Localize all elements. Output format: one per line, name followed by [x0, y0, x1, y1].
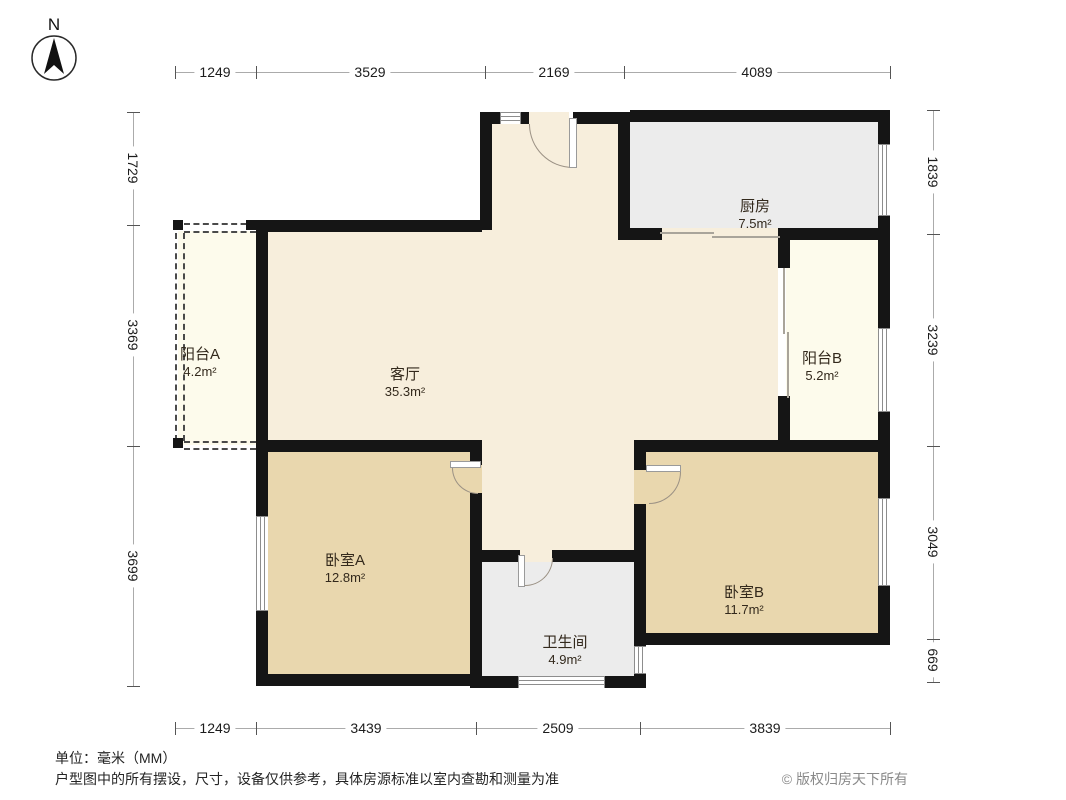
wall-segment — [878, 584, 890, 645]
wall-segment — [634, 452, 646, 470]
room-name: 阳台B — [782, 350, 862, 368]
room-name: 卧室A — [285, 552, 405, 570]
dimension-label: 1839 — [925, 150, 941, 193]
dimension-label: 3239 — [925, 318, 941, 361]
room-name: 卫生间 — [505, 634, 625, 652]
room-area: 11.7m² — [684, 602, 804, 618]
dimension-tick — [890, 722, 891, 735]
dimension-tick — [927, 110, 940, 111]
dimension-tick — [127, 686, 140, 687]
dimension-tick — [640, 722, 641, 735]
dimension-tick — [127, 225, 140, 226]
window — [518, 676, 605, 688]
dimension-line — [933, 110, 934, 682]
balcony-corner-post — [173, 438, 183, 448]
dimension-tick — [256, 722, 257, 735]
room-label-balcony-a: 阳台A 4.2m² — [160, 346, 240, 380]
wall-segment — [470, 493, 482, 688]
wall-segment — [552, 550, 646, 562]
room-area: 4.9m² — [505, 652, 625, 668]
floor-plan: N — [0, 0, 1066, 800]
wall-segment — [256, 440, 482, 452]
dimension-tick — [127, 112, 140, 113]
dimension-label: 3699 — [125, 544, 141, 587]
dimension-label: 1249 — [194, 720, 235, 736]
dimension-label: 4089 — [736, 64, 777, 80]
wall-segment — [618, 228, 662, 240]
wall-segment — [878, 410, 890, 498]
wall-segment — [256, 674, 482, 686]
wall-segment — [634, 440, 890, 452]
dimension-label: 2169 — [533, 64, 574, 80]
room-area: 35.3m² — [345, 384, 465, 400]
dimension-label: 3529 — [349, 64, 390, 80]
wall-segment — [482, 550, 520, 562]
room-name: 客厅 — [345, 366, 465, 384]
balcony-b-opening — [783, 268, 785, 334]
wall-segment — [634, 633, 890, 645]
balcony-outline-dash — [184, 441, 256, 443]
window — [878, 498, 890, 586]
wall-segment — [778, 396, 790, 442]
room-label-bedroom-b: 卧室B 11.7m² — [684, 584, 804, 618]
room-area: 12.8m² — [285, 570, 405, 586]
wall-segment — [878, 110, 890, 144]
bathroom-door-leaf — [518, 555, 525, 587]
room-label-living: 客厅 35.3m² — [345, 366, 465, 400]
wall-segment — [634, 504, 646, 646]
balcony-a-floor — [178, 231, 258, 445]
entry-door-leaf — [569, 118, 577, 168]
dimension-label: 669 — [925, 642, 941, 677]
balcony-outline-dash — [175, 233, 177, 441]
room-area: 7.5m² — [695, 216, 815, 232]
balcony-outline-dash — [183, 233, 185, 441]
compass-north-label: N — [48, 15, 60, 34]
wall-segment — [630, 110, 890, 122]
wall-segment — [778, 238, 790, 268]
living-room-floor — [268, 228, 778, 443]
disclaimer-text: 户型图中的所有摆设，尺寸，设备仅供参考，具体房源标准以室内查勘和测量为准 — [55, 769, 559, 789]
dimension-label: 3439 — [345, 720, 386, 736]
room-label-bathroom: 卫生间 4.9m² — [505, 634, 625, 668]
room-area: 4.2m² — [160, 364, 240, 380]
room-label-kitchen: 厨房 7.5m² — [695, 198, 815, 232]
room-name: 卧室B — [684, 584, 804, 602]
window — [878, 328, 890, 412]
room-area: 5.2m² — [782, 368, 862, 384]
room-name: 厨房 — [695, 198, 815, 216]
dimension-label: 2509 — [537, 720, 578, 736]
wall-segment — [256, 220, 482, 232]
dimension-tick — [927, 446, 940, 447]
dimension-label: 3369 — [125, 313, 141, 356]
dimension-label: 3839 — [744, 720, 785, 736]
dimension-tick — [175, 722, 176, 735]
dimension-label: 1249 — [194, 64, 235, 80]
unit-note: 单位：毫米（MM） — [55, 748, 176, 768]
dimension-tick — [476, 722, 477, 735]
hallway-floor — [482, 440, 634, 562]
window — [878, 144, 890, 216]
balcony-corner-post — [173, 220, 183, 230]
window — [256, 516, 268, 611]
dimension-label: 3049 — [925, 520, 941, 563]
window — [500, 112, 521, 124]
balcony-outline-dash — [184, 231, 256, 233]
north-compass-icon: N — [20, 10, 88, 90]
dimension-tick — [927, 682, 940, 683]
room-label-bedroom-a: 卧室A 12.8m² — [285, 552, 405, 586]
dimension-tick — [927, 639, 940, 640]
balcony-outline-dash — [184, 448, 256, 450]
bedroom-b-door-leaf — [646, 465, 681, 472]
kitchen-opening — [660, 232, 714, 234]
window — [634, 646, 646, 674]
dimension-tick — [624, 66, 625, 79]
kitchen-opening — [712, 236, 780, 238]
balcony-corner-post — [246, 220, 256, 230]
dimension-tick — [175, 66, 176, 79]
dimension-label: 1729 — [125, 146, 141, 189]
bedroom-a-door-leaf — [450, 461, 481, 468]
dimension-line — [133, 112, 134, 686]
compass-needle-icon — [44, 38, 64, 74]
room-label-balcony-b: 阳台B 5.2m² — [782, 350, 862, 384]
dimension-tick — [927, 234, 940, 235]
wall-segment — [470, 676, 518, 688]
wall-segment — [618, 122, 630, 234]
dimension-tick — [890, 66, 891, 79]
copyright-text: © 版权归房天下所有 — [782, 769, 908, 789]
balcony-b-floor — [786, 238, 882, 442]
wall-segment — [480, 112, 492, 230]
wall-segment — [878, 214, 890, 328]
dimension-tick — [485, 66, 486, 79]
wall-segment — [634, 672, 646, 688]
dimension-tick — [256, 66, 257, 79]
dimension-tick — [127, 446, 140, 447]
room-name: 阳台A — [160, 346, 240, 364]
wall-segment — [256, 220, 268, 516]
